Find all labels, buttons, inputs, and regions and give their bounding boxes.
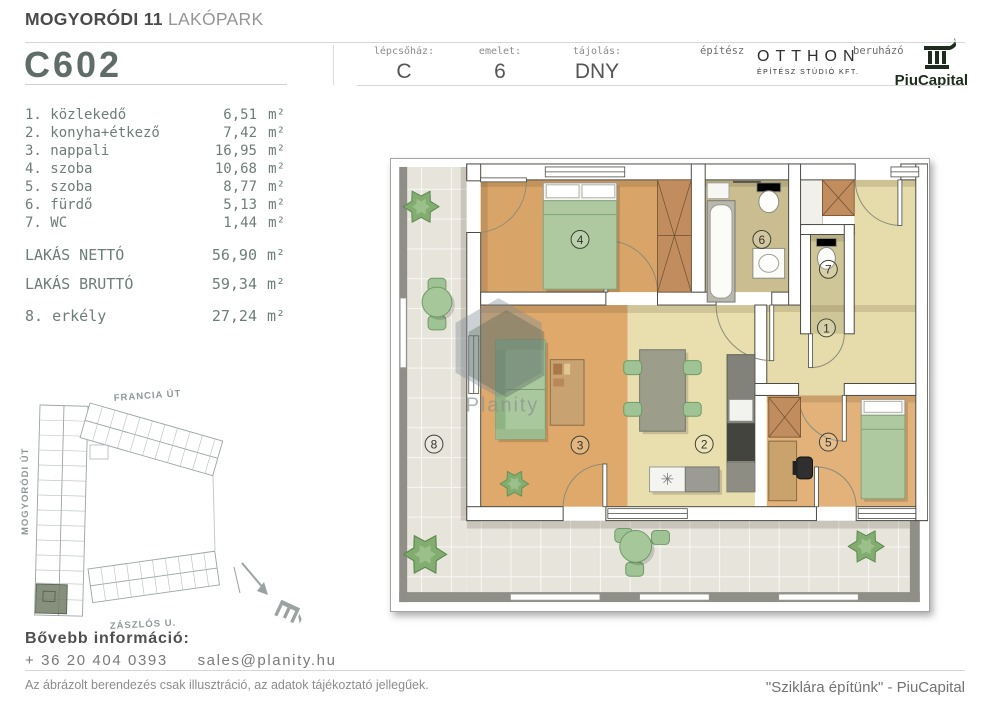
site-top-wing — [80, 403, 223, 476]
site-annex — [90, 445, 108, 459]
compass-icon: É — [234, 563, 304, 627]
architect-name: OTTHON — [757, 48, 861, 66]
developer-name: PiuCapital — [886, 72, 968, 89]
net-area-row: LAKÁS NETTÓ56,90m² — [25, 246, 285, 275]
contact-heading: Bővebb információ: — [25, 630, 190, 648]
pillow — [582, 185, 615, 198]
room-row: 7. WC1,44m² — [25, 215, 285, 233]
highlighted-unit — [36, 584, 68, 614]
room-area-list: 1. közlekedő6,51m² 2. konyha+étkező7,42m… — [25, 107, 285, 325]
developer-label: beruházó — [853, 45, 904, 57]
floor-plan-sheet: MOGYORÓDI 11 LAKÓPARK C602 lépcsőház: C … — [0, 0, 1000, 707]
room-label-1: 1 — [817, 319, 835, 337]
oven — [727, 423, 755, 461]
header-cell-divider — [333, 45, 334, 85]
gross-area-row: LAKÁS BRUTTÓ59,34m² — [25, 275, 285, 304]
toilet-tank — [816, 238, 836, 246]
room-label-8: 8 — [425, 435, 443, 453]
svg-text:2: 2 — [701, 438, 708, 452]
dining-chair — [624, 361, 642, 375]
architect-label: építész — [700, 45, 744, 57]
room-label-5: 5 — [819, 433, 837, 451]
railing-panel — [779, 594, 858, 600]
svg-text:8: 8 — [431, 438, 438, 452]
svg-text:5: 5 — [825, 436, 832, 450]
dining-chair — [624, 402, 642, 416]
dining-chair — [683, 361, 701, 375]
room-label-7: 7 — [819, 260, 837, 278]
room-row: 3. nappali16,95m² — [25, 143, 285, 161]
railing-panel — [400, 298, 406, 368]
room-row: 5. szoba8,77m² — [25, 179, 285, 197]
dining-table — [640, 350, 686, 431]
svg-text:4: 4 — [577, 233, 584, 247]
balcony-area: 8. erkély27,24m² — [25, 307, 285, 325]
kitchen-island — [685, 467, 719, 492]
dining-chair — [683, 402, 701, 416]
slogan-text: "Sziklára építünk" - PiuCapital — [766, 679, 965, 696]
railing-panel — [640, 594, 710, 600]
room-label-4: 4 — [571, 231, 589, 249]
room-label-2: 2 — [695, 435, 713, 453]
street-label-left: MOGYORÓDI ÚT — [19, 448, 31, 535]
sink — [729, 399, 753, 421]
project-title-bold: MOGYORÓDI 11 — [25, 9, 163, 29]
field-orientation-label: tájolás: — [532, 46, 662, 57]
single-bed — [861, 415, 905, 498]
room-label-3: 3 — [571, 436, 589, 454]
office-chair — [797, 457, 813, 479]
site-plan: FRANCIA ÚT MOGYORÓDI ÚT ZÁSZLÓS U. É — [14, 383, 304, 633]
project-title: MOGYORÓDI 11 LAKÓPARK — [25, 9, 263, 30]
svg-text:6: 6 — [759, 233, 766, 247]
round-table — [620, 531, 652, 563]
disclaimer-text: Az ábrázolt berendezés csak illusztráció… — [25, 678, 429, 692]
unitcode-underline — [25, 84, 287, 85]
bedroom4-furniture — [543, 180, 691, 292]
toilet-icon — [759, 191, 779, 213]
field-orientation: tájolás: DNY — [532, 46, 662, 84]
room-row: 2. konyha+étkező7,42m² — [25, 125, 285, 143]
balcony-row: 8. erkély27,24m² — [25, 307, 285, 325]
desk — [769, 441, 797, 501]
piucapital-logo-icon — [916, 38, 962, 72]
footer-divider — [25, 670, 965, 671]
balcony-chair — [652, 531, 670, 545]
svg-text:1: 1 — [823, 321, 830, 335]
bath-shelf — [707, 183, 729, 199]
header-bottom-divider — [357, 85, 965, 86]
architect-logo: OTTHON ÉPÍTÉSZ STÚDIÓ KFT. — [757, 48, 861, 76]
courtyard-edge — [213, 476, 215, 551]
project-title-light: LAKÓPARK — [168, 9, 263, 29]
room-row: 4. szoba10,68m² — [25, 161, 285, 179]
pillow — [546, 185, 579, 198]
site-bottom-wing — [88, 551, 219, 602]
contact-email[interactable]: sales@planity.hu — [198, 652, 337, 669]
compass-north-letter: É — [267, 595, 304, 628]
pillow — [864, 401, 902, 412]
architect-subtitle: ÉPÍTÉSZ STÚDIÓ KFT. — [757, 69, 861, 76]
unit-code: C602 — [24, 44, 122, 86]
room-row: 6. fürdő5,13m² — [25, 197, 285, 215]
floor-plan-frame: Planity 1 2 3 4 5 6 7 8 — [390, 158, 930, 612]
contact-phone[interactable]: + 36 20 404 0393 — [25, 652, 168, 669]
railing-panel — [510, 594, 599, 600]
header-divider — [25, 42, 965, 43]
field-orientation-value: DNY — [532, 60, 662, 84]
contact-row: + 36 20 404 0393 sales@planity.hu — [25, 652, 337, 669]
area-summary: LAKÁS NETTÓ56,90m² LAKÁS BRUTTÓ59,34m² — [25, 246, 285, 304]
room-label-6: 6 — [753, 231, 771, 249]
floor-plan-drawing: Planity 1 2 3 4 5 6 7 8 — [391, 159, 928, 610]
hall-wardrobe — [822, 180, 854, 216]
round-table — [422, 287, 452, 317]
svg-text:3: 3 — [577, 439, 584, 453]
street-label-top: FRANCIA ÚT — [113, 387, 181, 404]
room-row: 1. közlekedő6,51m² — [25, 107, 285, 125]
shaft — [801, 180, 823, 225]
svg-text:7: 7 — [825, 263, 832, 277]
watermark-text: Planity — [466, 394, 540, 416]
